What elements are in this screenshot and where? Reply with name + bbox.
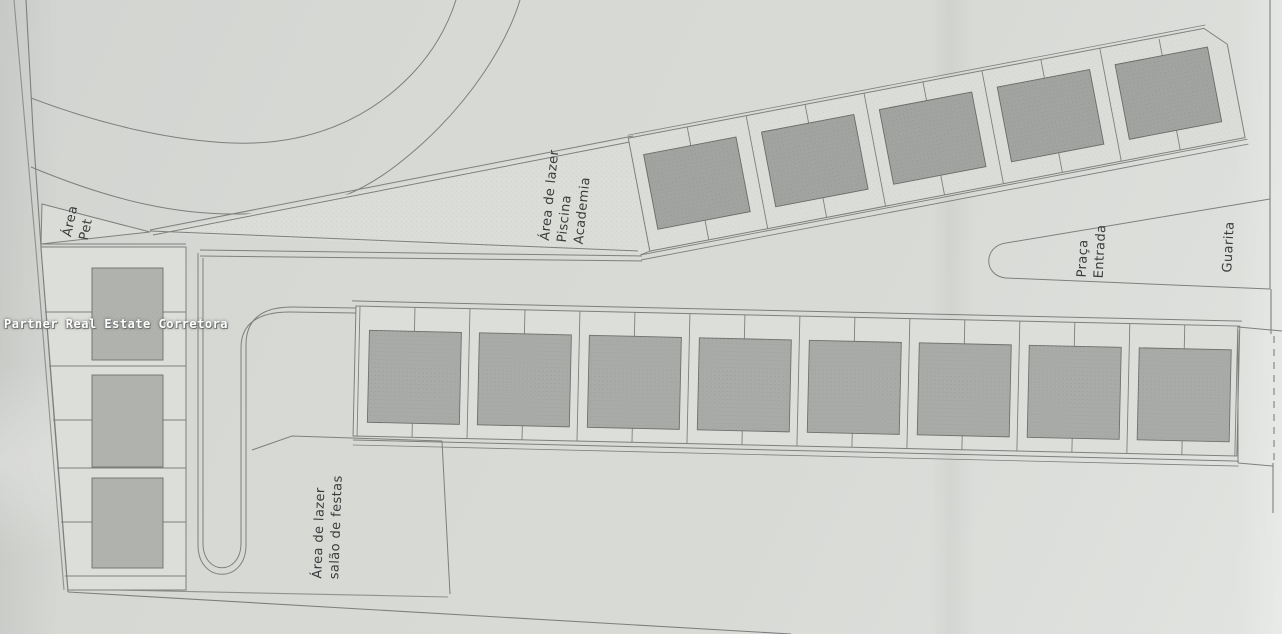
building [92,478,163,568]
building [587,335,681,429]
party-hall-area [252,436,450,594]
buildings [644,47,1222,229]
party-hall-label: Área de lazer salão de festas [309,474,347,579]
building [1027,345,1121,439]
building [92,375,163,467]
leisure-pool-label: Área de lazer Piscina Academia [537,149,597,245]
buildings [92,268,163,568]
building [477,333,571,427]
upper-lot-strip [618,21,1248,260]
pet-area-label: Área Pet [59,204,99,242]
building [807,340,901,434]
watermark-text: Partner Real Estate Corretora [4,317,228,331]
left-lot-column [41,244,186,590]
building [697,338,791,432]
middle-row-end [1238,327,1282,466]
entrance-square-label: Praça Entrada [1074,223,1111,279]
site-plan-photo: Área Pet Área de lazer Piscina Academia … [0,0,1282,634]
building [1137,348,1231,442]
middle-lot-row [349,301,1242,466]
guardhouse-label: Guarita [1219,221,1239,273]
building [367,330,461,424]
building [917,343,1011,437]
building [92,268,163,360]
